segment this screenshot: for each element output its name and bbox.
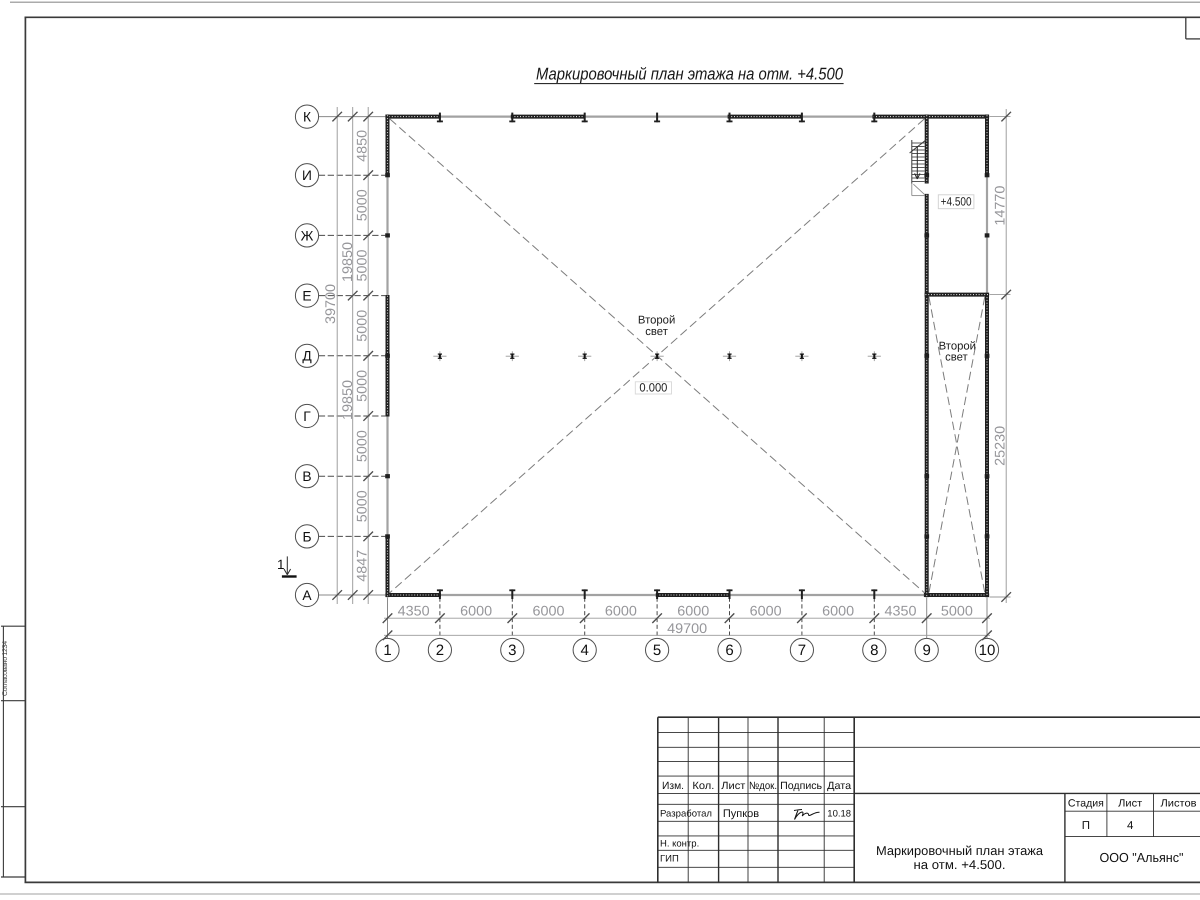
- svg-text:5000: 5000: [354, 490, 370, 522]
- svg-text:4847: 4847: [354, 549, 370, 581]
- svg-text:6000: 6000: [750, 603, 782, 619]
- svg-text:свет: свет: [645, 326, 668, 338]
- svg-text:Пупков: Пупков: [723, 808, 759, 820]
- svg-text:10: 10: [979, 642, 996, 659]
- svg-text:Ж: Ж: [301, 228, 314, 243]
- svg-text:5: 5: [653, 642, 661, 659]
- svg-text:Б: Б: [302, 529, 311, 544]
- svg-text:1: 1: [277, 557, 285, 572]
- svg-text:1: 1: [383, 642, 391, 659]
- svg-text:4850: 4850: [354, 130, 370, 162]
- svg-text:Кол.: Кол.: [692, 780, 714, 792]
- svg-text:8: 8: [870, 642, 878, 659]
- svg-text:Изм.: Изм.: [662, 780, 684, 792]
- svg-text:Второй: Второй: [939, 340, 976, 352]
- svg-text:5000: 5000: [354, 189, 370, 221]
- svg-text:19850: 19850: [339, 380, 355, 420]
- svg-text:В: В: [302, 469, 311, 484]
- svg-text:Подпись: Подпись: [780, 780, 823, 792]
- svg-text:49700: 49700: [667, 620, 707, 636]
- svg-text:5000: 5000: [354, 249, 370, 281]
- svg-text:Маркировочный план этажа на от: Маркировочный план этажа на отм. +4.500: [536, 65, 843, 84]
- svg-text:Лист: Лист: [1118, 798, 1142, 810]
- svg-text:5000: 5000: [354, 309, 370, 341]
- svg-text:Г: Г: [303, 409, 311, 424]
- svg-text:Д: Д: [302, 349, 312, 364]
- svg-text:25230: 25230: [991, 426, 1007, 466]
- svg-text:6000: 6000: [460, 603, 492, 619]
- svg-text:свет: свет: [945, 352, 968, 364]
- svg-text:+4.500: +4.500: [941, 194, 972, 208]
- svg-text:19850: 19850: [339, 242, 355, 282]
- svg-text:2: 2: [436, 642, 444, 659]
- svg-text:5000: 5000: [941, 603, 973, 619]
- svg-text:6000: 6000: [605, 603, 637, 619]
- svg-text:на отм. +4.500.: на отм. +4.500.: [914, 857, 1006, 872]
- svg-text:Лист: Лист: [721, 780, 745, 792]
- svg-text:6000: 6000: [822, 603, 854, 619]
- svg-text:10.18: 10.18: [827, 808, 851, 819]
- svg-text:14770: 14770: [991, 185, 1007, 225]
- svg-text:ГИП: ГИП: [660, 854, 679, 865]
- svg-text:4350: 4350: [885, 603, 917, 619]
- svg-text:ООО "Альянс": ООО "Альянс": [1100, 850, 1184, 865]
- svg-text:И: И: [302, 168, 312, 183]
- svg-text:Маркировочный план этажа: Маркировочный план этажа: [876, 843, 1044, 858]
- svg-text:5000: 5000: [354, 370, 370, 402]
- svg-text:Н. контр.: Н. контр.: [660, 839, 699, 850]
- svg-text:0.000: 0.000: [639, 380, 667, 394]
- svg-text:39700: 39700: [322, 284, 338, 324]
- svg-text:6000: 6000: [533, 603, 565, 619]
- svg-text:7: 7: [798, 642, 806, 659]
- svg-text:4: 4: [581, 642, 589, 659]
- svg-text:Второй: Второй: [638, 315, 675, 327]
- svg-text:6000: 6000: [677, 603, 709, 619]
- svg-text:К: К: [303, 110, 311, 125]
- svg-text:Согласовано 1234: Согласовано 1234: [2, 641, 9, 696]
- svg-text:3: 3: [508, 642, 516, 659]
- svg-text:4: 4: [1127, 820, 1134, 832]
- svg-text:№док.: №док.: [749, 780, 777, 792]
- svg-text:9: 9: [923, 642, 931, 659]
- svg-text:5000: 5000: [354, 430, 370, 462]
- svg-text:Листов: Листов: [1161, 798, 1197, 810]
- svg-text:6: 6: [725, 642, 733, 659]
- svg-text:П: П: [1082, 820, 1090, 832]
- svg-text:4350: 4350: [398, 603, 430, 619]
- svg-text:Разработал: Разработал: [660, 809, 712, 820]
- svg-text:Дата: Дата: [827, 780, 851, 792]
- svg-text:Е: Е: [302, 289, 311, 304]
- svg-text:Стадия: Стадия: [1068, 798, 1104, 810]
- svg-text:А: А: [302, 588, 312, 603]
